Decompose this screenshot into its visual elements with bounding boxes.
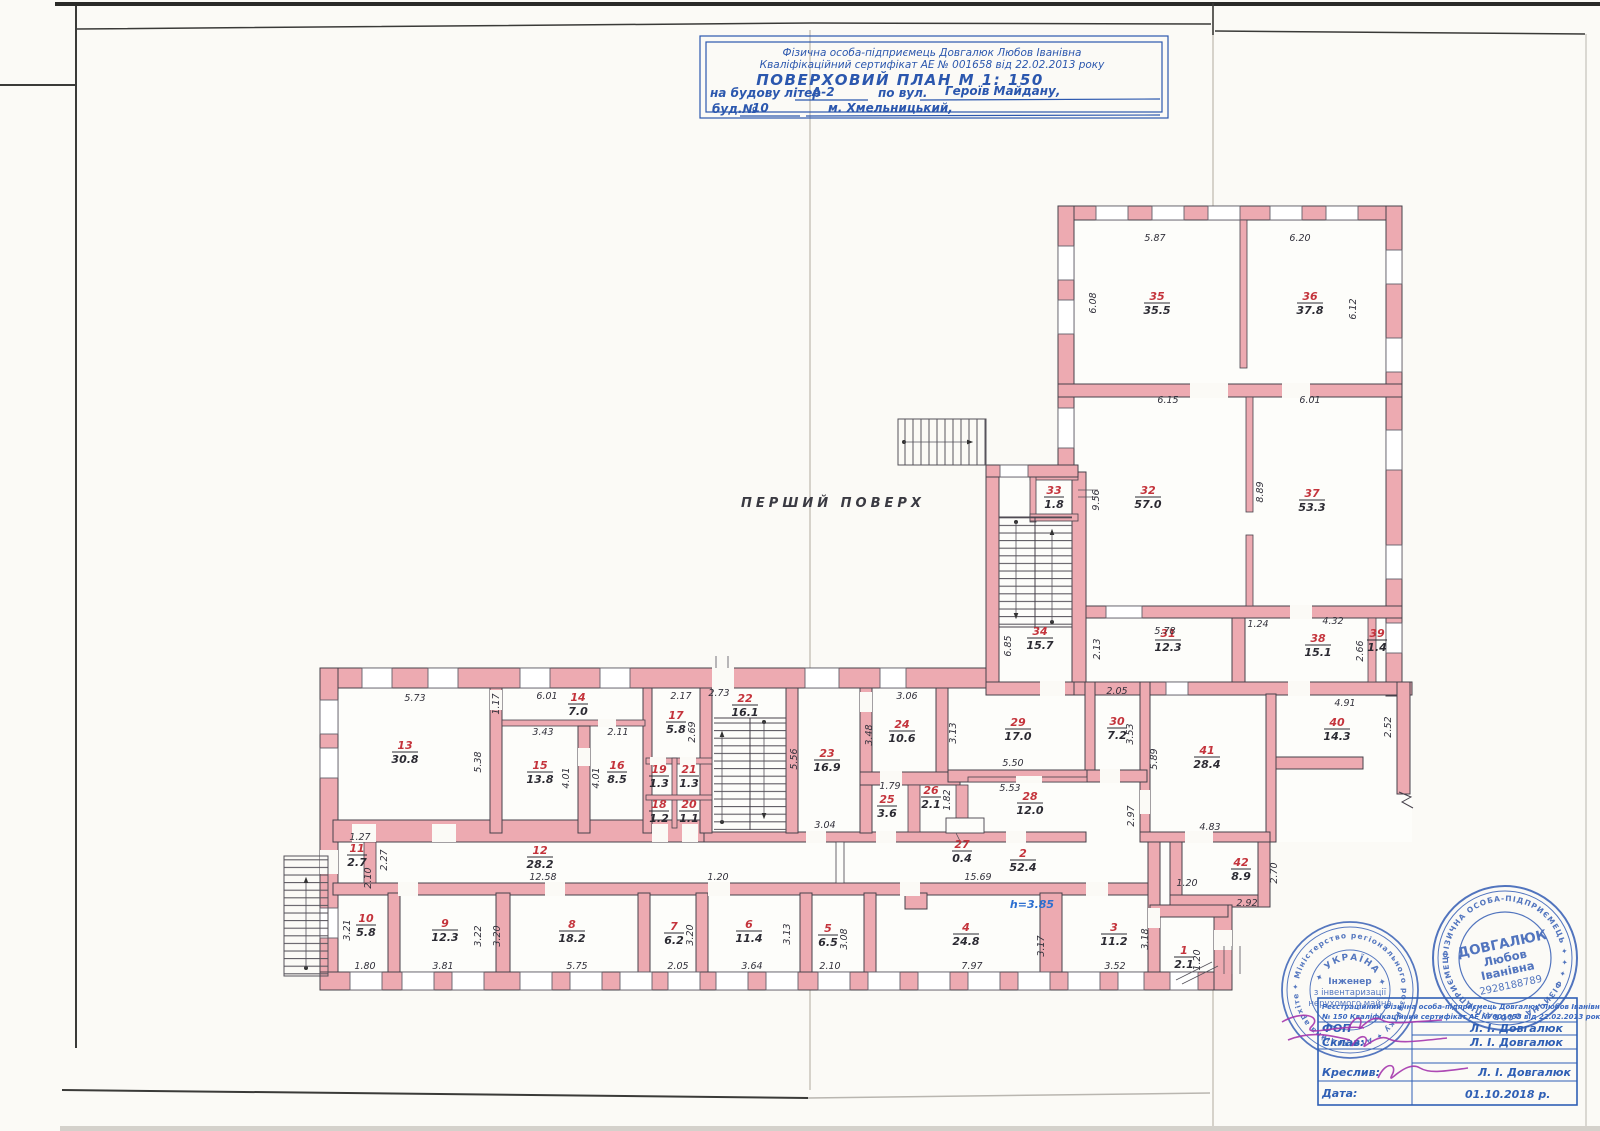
room-number: 15 (532, 759, 548, 772)
dimension-label: 2.05 (667, 961, 688, 972)
dimension-label: 4.91 (1334, 698, 1355, 709)
dimension-label: 2.92 (1236, 898, 1257, 909)
stamp-left-line1: Інженер (1328, 977, 1372, 987)
room-area: 11.2 (1100, 935, 1127, 948)
room-area: 15.7 (1026, 639, 1053, 652)
dimension-label: 3.20 (685, 924, 696, 945)
room-area: 35.5 (1143, 304, 1170, 317)
table-header-1: Реєстраційний Фізична особа-підприємець … (1322, 1003, 1600, 1011)
room-area: 11.4 (735, 932, 762, 945)
room-area: 28.4 (1193, 758, 1220, 771)
room-area: 57.0 (1134, 498, 1161, 511)
dimension-label: 4.01 (561, 767, 572, 788)
room-number: 13 (397, 739, 413, 752)
dimension-label: 1.20 (1192, 949, 1203, 970)
dimension-label: 3.21 (342, 919, 353, 940)
room-number: 26 (923, 784, 939, 797)
table-header-2: № 150 Кваліфікаційний сертифікат АЕ № 00… (1321, 1013, 1600, 1021)
dimension-label: 4.01 (591, 767, 602, 788)
room-number: 11 (349, 842, 364, 855)
room-number: 5 (824, 922, 832, 935)
floor-label: ПЕРШИЙ ПОВЕРХ (741, 495, 925, 511)
room-area: 8.9 (1231, 870, 1251, 883)
dimension-label: 2.52 (1383, 716, 1394, 737)
dimension-label: 1.20 (1176, 878, 1197, 889)
room-area: 37.8 (1296, 304, 1323, 317)
stamp-left-line2: з інвентаризації (1314, 988, 1387, 998)
dimension-label: 3.53 (1125, 723, 1136, 744)
room-number: 37 (1304, 487, 1320, 500)
dimension-label: 15.69 (964, 872, 991, 883)
dimension-label: 2.27 (379, 849, 390, 870)
room-number: 35 (1149, 290, 1165, 303)
title-house-no: 10 (752, 101, 769, 115)
dimension-label: 12.58 (529, 872, 556, 883)
room-area: 5.8 (666, 723, 686, 736)
room-number: 36 (1302, 290, 1318, 303)
room-area: 6.5 (818, 936, 838, 949)
room-area: 15.1 (1304, 646, 1331, 659)
dimension-label: 6.15 (1157, 395, 1178, 406)
title-line4c: по вул. (878, 86, 927, 100)
room-number: 8 (568, 918, 576, 931)
dimension-label: 5.56 (789, 748, 800, 769)
room-area: 1.2 (649, 812, 669, 825)
dimension-label: 5.89 (1149, 748, 1160, 769)
room-area: 7.0 (568, 705, 588, 718)
room-number: 20 (681, 798, 697, 811)
room-number: 28 (1022, 790, 1038, 803)
room-number: 39 (1369, 627, 1385, 640)
dimension-label: 6.20 (1289, 233, 1310, 244)
dimension-label: 7.97 (961, 961, 982, 972)
room-area: 2.1 (1174, 958, 1194, 971)
dimension-label: 6.12 (1348, 298, 1359, 319)
dimension-label: 4.32 (1322, 616, 1343, 627)
room-area: 10.6 (888, 732, 915, 745)
room-area: 1.3 (649, 777, 669, 790)
dimension-label: 2.73 (708, 688, 729, 699)
dimension-label: 2.10 (363, 867, 374, 888)
room-area: 52.4 (1009, 861, 1036, 874)
title-letter: А-2 (811, 85, 835, 99)
room-number: 12 (532, 844, 548, 857)
room-number: 19 (651, 763, 667, 776)
scanned-page: Фізична особа-підприємець Довгалюк Любов… (0, 0, 1600, 1131)
room-area: 53.3 (1298, 501, 1325, 514)
room-area: 8.5 (607, 773, 627, 786)
room-area: 28.2 (526, 858, 553, 871)
room-number: 23 (819, 747, 835, 760)
title-line5a: буд.№ (712, 102, 757, 116)
dimension-label: 5.78 (1154, 626, 1175, 637)
room-area: 18.2 (558, 932, 585, 945)
room-number: 3 (1110, 921, 1118, 934)
dimension-label: 6.01 (536, 691, 557, 702)
dimension-label: 3.18 (1140, 928, 1151, 949)
room-number: 6 (745, 918, 753, 931)
row-fop-value: Л. І. Довгалюк (1469, 1022, 1563, 1035)
dimension-label: 3.04 (814, 820, 835, 831)
room-number: 22 (737, 692, 753, 705)
dimension-label: 3.08 (839, 928, 850, 949)
room-number: 1 (1180, 944, 1188, 957)
dimension-label: 2.70 (1269, 862, 1280, 883)
room-area: 1.3 (679, 777, 699, 790)
dimension-label: 5.87 (1144, 233, 1165, 244)
dimension-label: 1.82 (942, 789, 953, 810)
room-area: 17.0 (1004, 730, 1031, 743)
floor-plan-drawing: Фізична особа-підприємець Довгалюк Любов… (0, 0, 1600, 1131)
room-number: 38 (1310, 632, 1326, 645)
dimension-label: 2.05 (1106, 686, 1127, 697)
dimension-label: 5.50 (1002, 758, 1023, 769)
dimension-label: 3.17 (1036, 935, 1047, 956)
row-date-value: 01.10.2018 р. (1465, 1088, 1550, 1101)
dimension-label: 3.81 (432, 961, 453, 972)
room-number: 9 (441, 917, 449, 930)
room-number: 18 (651, 798, 667, 811)
room-number: 25 (879, 793, 895, 806)
title-city: м. Хмельницький, (828, 101, 953, 115)
dimension-label: 1.80 (354, 961, 375, 972)
height-note: h=3.85 (1010, 898, 1055, 911)
dimension-label: 1.24 (1247, 619, 1268, 630)
room-area: 13.8 (526, 773, 553, 786)
title-certificate: Кваліфікаційний сертифікат АЕ № 001658 в… (760, 59, 1106, 71)
dimension-label: 3.13 (948, 722, 959, 743)
dimension-label: 3.43 (532, 727, 553, 738)
dimension-label: 3.06 (896, 691, 917, 702)
dimension-label: 3.52 (1104, 961, 1125, 972)
room-number: 4 (961, 921, 970, 934)
room-area: 1.8 (1044, 498, 1064, 511)
room-number: 41 (1198, 744, 1214, 757)
dimension-label: 1.27 (349, 832, 370, 843)
dimension-label: 6.01 (1299, 395, 1320, 406)
title-street: Героїв Майдану, (945, 84, 1060, 98)
dimension-label: 3.20 (492, 925, 503, 946)
room-number: 33 (1046, 484, 1062, 497)
dimension-label: 4.83 (1199, 822, 1220, 833)
row-date-label: Дата: (1321, 1087, 1357, 1100)
dimension-label: 1.79 (879, 781, 900, 792)
room-area: 16.1 (731, 706, 758, 719)
row-kresliv-label: Креслив: (1322, 1066, 1380, 1079)
dimension-label: 3.48 (864, 724, 875, 745)
dimension-label: 2.17 (670, 691, 691, 702)
dimension-label: 2.69 (687, 721, 698, 742)
room-number: 42 (1232, 856, 1249, 869)
room-area: 12.0 (1016, 804, 1043, 817)
room-area: 12.3 (1154, 641, 1181, 654)
dimension-label: 1.20 (707, 872, 728, 883)
dimension-label: 2.10 (819, 961, 840, 972)
room-area: 1.1 (679, 812, 699, 825)
room-number: 2 (1019, 847, 1027, 860)
room-27-niche (946, 818, 984, 833)
room-number: 29 (1010, 716, 1026, 729)
room-number: 10 (358, 912, 374, 925)
dimension-label: 5.75 (566, 961, 587, 972)
dimension-label: 1.17 (491, 693, 502, 714)
room-number: 32 (1140, 484, 1156, 497)
room-area: 1.4 (1367, 641, 1387, 654)
row-sklav-value: Л. І. Довгалюк (1469, 1036, 1563, 1049)
room-area: 24.8 (952, 935, 979, 948)
room-area: 5.8 (356, 926, 376, 939)
room-number: 24 (894, 718, 909, 731)
room-area: 30.8 (391, 753, 418, 766)
room-area: 2.7 (347, 856, 367, 869)
dimension-label: 3.64 (741, 961, 762, 972)
dimension-label: 6.08 (1088, 292, 1099, 313)
room-number: 40 (1328, 716, 1345, 729)
dimension-label: 2.13 (1092, 638, 1103, 659)
room-number: 21 (681, 763, 696, 776)
dimension-label: 5.38 (473, 751, 484, 772)
room-number: 34 (1032, 625, 1047, 638)
row-kresliv-value: Л. І. Довгалюк (1477, 1066, 1571, 1079)
dimension-label: 3.22 (473, 925, 484, 946)
dimension-label: 9.56 (1091, 489, 1102, 510)
room-number: 27 (954, 838, 970, 851)
dimension-label: 6.85 (1003, 635, 1014, 656)
dimension-label: 8.89 (1255, 481, 1266, 502)
room-area: 6.2 (664, 934, 684, 947)
room-area: 2.1 (921, 798, 941, 811)
dimension-label: 2.11 (607, 727, 628, 738)
dimension-label: 2.66 (1355, 640, 1366, 661)
dimension-label: 5.73 (404, 693, 425, 704)
room-area: 0.4 (952, 852, 972, 865)
room-area: 16.9 (813, 761, 840, 774)
title-owner: Фізична особа-підприємець Довгалюк Любов… (783, 47, 1082, 59)
room-number: 14 (570, 691, 585, 704)
room-number: 30 (1109, 715, 1125, 728)
room-area: 12.3 (431, 931, 458, 944)
room-number: 16 (609, 759, 625, 772)
title-line4a: на будову літер (710, 86, 821, 100)
room-area: 3.6 (877, 807, 897, 820)
room-area: 14.3 (1323, 730, 1350, 743)
dimension-label: 5.53 (999, 783, 1020, 794)
dimension-label: 2.97 (1126, 805, 1137, 826)
room-number: 17 (668, 709, 684, 722)
room-number: 7 (670, 920, 678, 933)
dimension-label: 3.13 (782, 923, 793, 944)
